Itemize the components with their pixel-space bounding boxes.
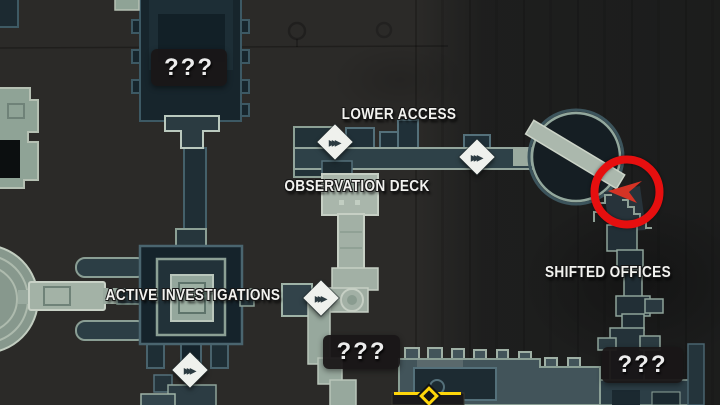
fast-travel-marker-icon[interactable]: ▸▸▸ bbox=[459, 139, 494, 174]
unknown-room-badge: ??? bbox=[323, 335, 400, 369]
room-active-investigations bbox=[76, 229, 254, 405]
unknown-room-label: ??? bbox=[618, 351, 668, 379]
highlight-circle bbox=[591, 156, 664, 229]
fast-travel-marker-icon[interactable]: ▸▸▸ bbox=[303, 280, 338, 315]
unknown-room-label: ??? bbox=[337, 338, 387, 366]
game-map: ??? ??? ??? LOWER ACCESS OBSERVATION DEC… bbox=[0, 0, 720, 405]
unknown-room-badge: ??? bbox=[151, 49, 227, 86]
unknown-room-label: ??? bbox=[164, 54, 214, 82]
fast-travel-marker-icon[interactable]: ▸▸▸ bbox=[317, 124, 352, 159]
fast-travel-marker-icon[interactable]: ▸▸▸ bbox=[172, 352, 207, 387]
room-label-shifted-offices: SHIFTED OFFICES bbox=[534, 264, 682, 282]
room-label-observation-deck: OBSERVATION DECK bbox=[272, 178, 443, 196]
room-upper-unknown bbox=[132, 0, 249, 249]
room-label-lower-access: LOWER ACCESS bbox=[332, 106, 467, 124]
unknown-room-badge: ??? bbox=[602, 347, 683, 383]
room-label-active-investigations: ACTIVE INVESTIGATIONS bbox=[90, 287, 295, 305]
